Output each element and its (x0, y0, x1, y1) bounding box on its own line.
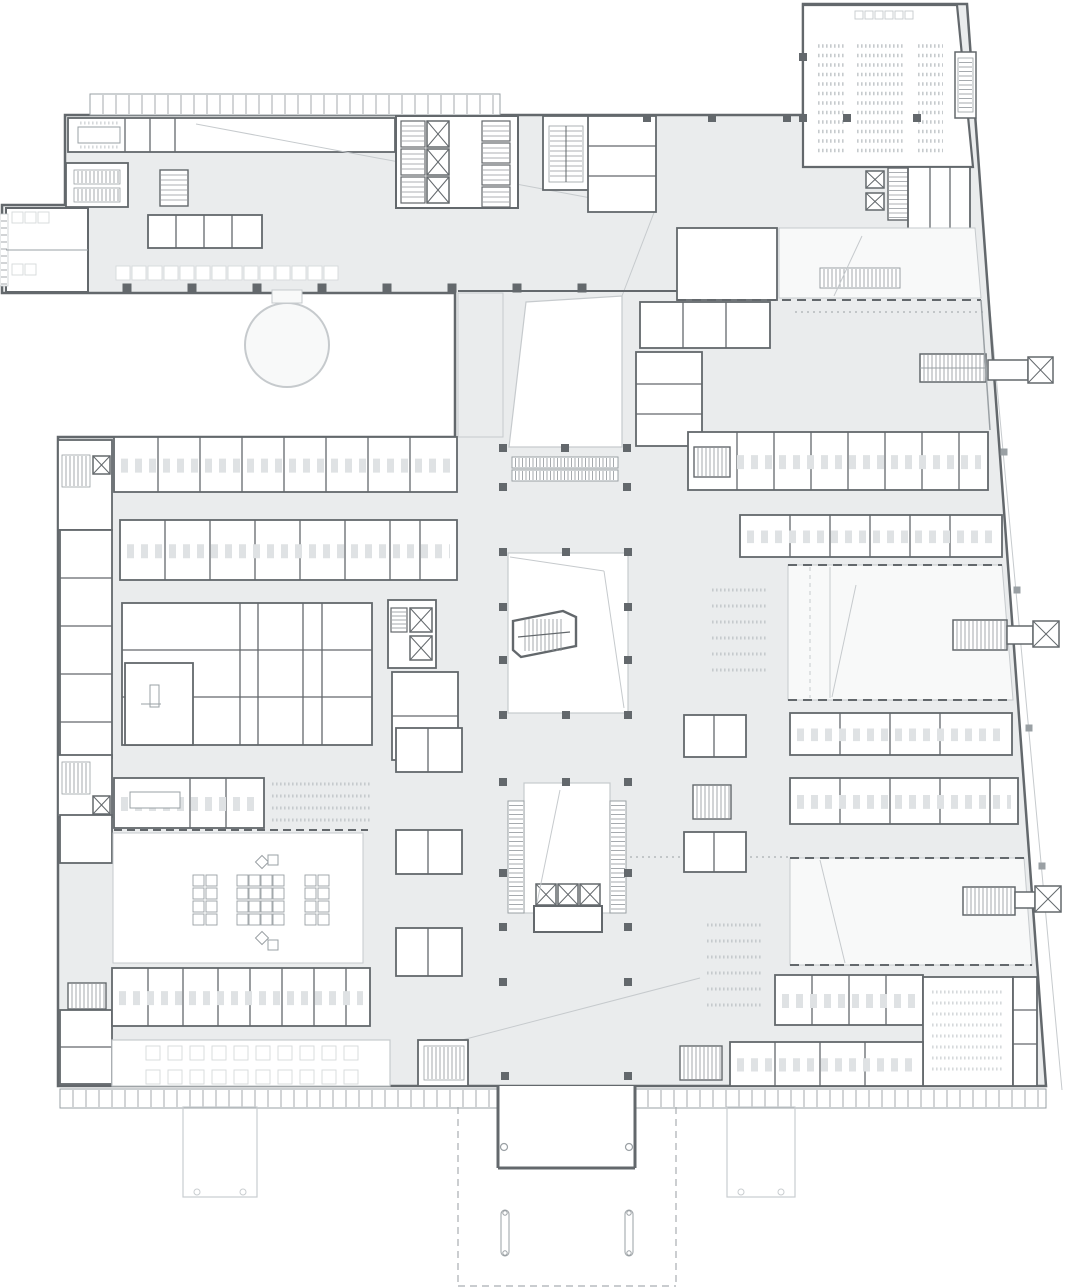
atrium-void-upper (509, 296, 622, 447)
elevator-shaft-wb1 (410, 608, 432, 632)
stair-auditorium-east (958, 58, 973, 112)
terrace-wide-stair (820, 268, 900, 288)
elevator-west-lower (93, 796, 110, 814)
serving-counter-north (268, 855, 278, 865)
elevator-pod-ne (1028, 357, 1053, 383)
elevator-car-n6 (482, 165, 510, 185)
conference-table-west (130, 792, 180, 808)
elevator-car-n5 (482, 143, 510, 163)
serving-counter-south (268, 940, 278, 950)
stair-east-band1 (694, 447, 730, 477)
stair-below-auditorium (888, 168, 910, 220)
elevator-pod-east-south (1035, 886, 1061, 912)
stair-forecourt-west (424, 1046, 464, 1080)
floor-plan-page (0, 0, 1080, 1288)
auditorium (803, 5, 973, 167)
porch-sw-column-1 (194, 1189, 200, 1195)
elevator-shaft-wb2 (410, 636, 432, 660)
stair-mid-column (693, 785, 731, 819)
elevator-shaft-c3 (580, 884, 600, 905)
stair-west-upper (62, 455, 90, 487)
elevator-car-n1 (401, 121, 425, 147)
south-east-rooms-lower (730, 1042, 923, 1086)
floor-plan-svg (0, 0, 1080, 1288)
elevator-shaft-aud1 (866, 171, 884, 188)
escalator-central-1 (512, 457, 618, 468)
escalator-central-2 (512, 470, 618, 481)
east-rooms-band2 (740, 515, 1002, 557)
north-rooms-wc (588, 116, 656, 212)
east-rooms-band1 (688, 432, 988, 490)
east-rooms-band4 (790, 778, 1018, 824)
elevator-car-n4 (482, 121, 510, 141)
elevator-pod-east-mid (1033, 621, 1059, 647)
elevator-shaft-n2 (427, 149, 449, 175)
stair-northwest-flight1 (74, 170, 120, 184)
core-strip-rooms-3 (396, 928, 462, 976)
east-sliver-rooms (1013, 977, 1037, 1086)
stair-west-lower (62, 762, 90, 794)
east-rooms-band3 (790, 713, 1012, 755)
stair-west-south (68, 983, 106, 1009)
room-northeast-hall (677, 228, 777, 300)
canopy-south-west (60, 1089, 498, 1108)
north-wing-exam-rooms (148, 215, 262, 248)
porch-sw-column-2 (240, 1189, 246, 1195)
escalator-lower-east (610, 801, 626, 913)
rooms-ne-mid (640, 302, 770, 348)
elevator-west-upper (93, 456, 110, 474)
elevator-shaft-n1 (427, 121, 449, 147)
south-east-rooms-upper (775, 975, 923, 1025)
west-block-rooms-band2 (120, 520, 457, 580)
canopy-south-east (635, 1089, 1046, 1108)
escalator-east-south (963, 887, 1015, 915)
escalator-lower-west (508, 801, 524, 913)
core-strip-rooms-2 (396, 830, 462, 874)
elevator-car-n3 (401, 177, 425, 203)
west-edge-rooms-3 (60, 1010, 112, 1084)
porch-se-column-2 (778, 1189, 784, 1195)
stair-forecourt-east (680, 1046, 722, 1080)
west-edge-rooms-1 (60, 530, 112, 758)
canopy-north (90, 94, 500, 115)
elevator-car-northwest (160, 170, 188, 206)
link-corridor (458, 293, 503, 437)
stair-northwest-flight2 (74, 188, 120, 202)
entrance-forecourt (498, 1086, 635, 1168)
mid-column-wc-upper (684, 715, 746, 757)
circular-pavilion (245, 303, 329, 387)
elevator-lobby-central (534, 906, 602, 932)
conference-table-north (78, 127, 120, 143)
south-wing-rooms (112, 968, 370, 1026)
mid-column-wc-lower (684, 832, 746, 872)
pod-bridge-east-south (1015, 892, 1035, 908)
west-edge-rooms-2 (60, 815, 112, 863)
west-block-rooms-band1 (114, 437, 457, 492)
escalator-east-mid (953, 620, 1007, 650)
west-annex-desks-top (12, 212, 49, 223)
elevator-shaft-n3 (427, 177, 449, 203)
elevator-shaft-c2 (558, 884, 578, 905)
pod-bridge-east-mid (1007, 626, 1033, 644)
core-strip-rooms-1 (396, 728, 462, 772)
elevator-car-west-block (391, 608, 407, 632)
bench-west (501, 1210, 509, 1256)
porch-southwest (183, 1107, 257, 1197)
pod-bridge-ne (988, 360, 1028, 380)
circular-pavilion-link (272, 290, 302, 303)
elevator-car-n2 (401, 149, 425, 175)
elevator-shaft-aud2 (866, 193, 884, 210)
porch-se-column-1 (738, 1189, 744, 1195)
porch-southeast (727, 1107, 795, 1197)
elevator-car-n7 (482, 187, 510, 207)
bench-east (625, 1210, 633, 1256)
rooms-below-auditorium (908, 167, 970, 229)
